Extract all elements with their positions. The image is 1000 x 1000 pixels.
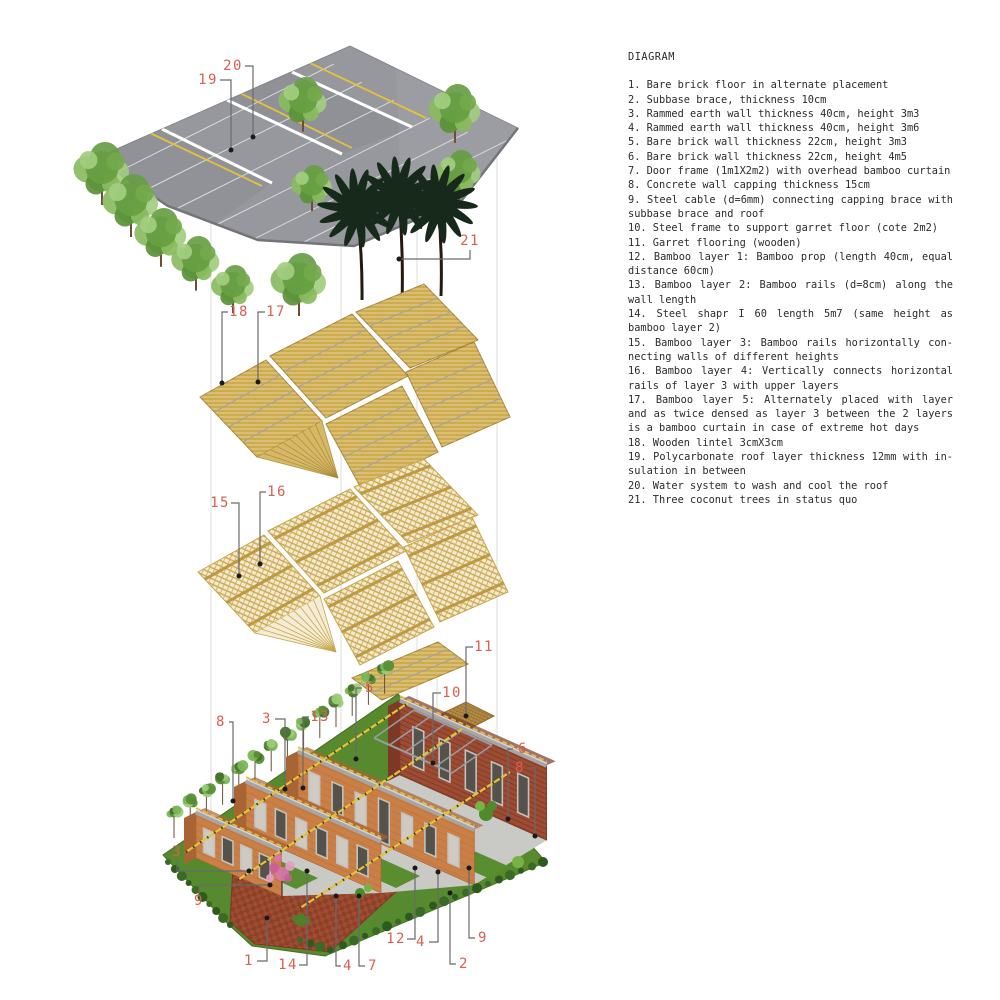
legend-item: 2. Subbase brace, thickness 10cm (628, 93, 953, 107)
callout-dot (533, 834, 538, 839)
callout-number: 17 (266, 304, 286, 320)
callout-number: 16 (267, 484, 287, 500)
legend-item: 21. Three coconut trees in status quo (628, 493, 953, 507)
callout-number: 18 (229, 304, 249, 320)
shrub-icon (512, 856, 524, 868)
callout-number: 11 (474, 639, 494, 655)
legend-item: 11. Garret flooring (wooden) (628, 236, 953, 250)
callout-dot (448, 891, 453, 896)
legend-list: 1. Bare brick floor in alternate placeme… (628, 78, 953, 507)
callout-number: 4 (416, 934, 426, 950)
legend-item: 8. Concrete wall capping thickness 15cm (628, 178, 953, 192)
callout-dot (258, 562, 263, 567)
legend-item: 17. Bamboo layer 5: Alternately placed w… (628, 393, 953, 436)
callout-dot (247, 869, 252, 874)
legend-item: 12. Bamboo layer 1: Bamboo prop (length … (628, 250, 953, 279)
legend-item: 19. Polycarbonate roof layer thickness 1… (628, 450, 953, 479)
callout-dot (283, 787, 288, 792)
callout-number: 8 (216, 714, 226, 730)
callout-number: 9 (194, 893, 204, 909)
callout-21: 21 (397, 233, 480, 262)
legend-item: 16. Bamboo layer 4: Vertically connects … (628, 364, 953, 393)
callout-number: 3 (262, 711, 272, 727)
bamboo-grove-tree-icon (167, 806, 184, 839)
shrub-icon (475, 801, 485, 811)
callout-dot (354, 757, 359, 762)
callout-dot (256, 380, 261, 385)
callout-number: 6 (518, 741, 528, 757)
callout-number: 8 (515, 760, 525, 776)
callout-dot (464, 714, 469, 719)
callout-dot (265, 916, 270, 921)
legend-item: 9. Steel cable (d=6mm) connecting cappin… (628, 193, 953, 222)
callout-dot (467, 866, 472, 871)
legend-item: 15. Bamboo layer 3: Bamboo rails horizon… (628, 336, 953, 365)
callout-number: 1 (244, 953, 254, 969)
callout-dot (268, 883, 273, 888)
callout-number: 10 (442, 685, 462, 701)
legend-item: 3. Rammed earth wall thickness 40cm, hei… (628, 107, 953, 121)
legend-item: 14. Steel shapr I 60 length 5m7 (same he… (628, 307, 953, 336)
callout-dot (231, 799, 236, 804)
bamboo-grove-tree-icon (264, 739, 278, 772)
callout-dot (357, 894, 362, 899)
legend-item: 1. Bare brick floor in alternate placeme… (628, 78, 953, 92)
shrub-icon (364, 884, 372, 892)
legend-item: 13. Bamboo layer 2: Bamboo rails (d=8cm)… (628, 278, 953, 307)
legend-item: 5. Bare brick wall thickness 22cm, heigh… (628, 135, 953, 149)
callout-dot (436, 870, 441, 875)
callout-dot (334, 894, 339, 899)
callout-8-left: 8 (216, 714, 235, 804)
callout-number: 15 (210, 495, 230, 511)
callout-dot (237, 574, 242, 579)
callout-number: 3 (172, 844, 182, 860)
callout-number: 20 (223, 58, 243, 74)
legend: DIAGRAM 1. Bare brick floor in alternate… (628, 50, 953, 507)
legend-title: DIAGRAM (628, 50, 953, 64)
legend-item: 20. Water system to wash and cool the ro… (628, 479, 953, 493)
bamboo-layer-3-lattice-panels (198, 459, 508, 665)
callout-dot (431, 761, 436, 766)
shrub-icon (487, 801, 497, 811)
callout-dot (305, 869, 310, 874)
callout-number: 14 (278, 957, 298, 973)
callout-number: 19 (198, 72, 218, 88)
callout-number: 7 (368, 958, 378, 974)
legend-item: 4. Rammed earth wall thickness 40cm, hei… (628, 121, 953, 135)
legend-item: 18. Wooden lintel 3cmX3cm (628, 436, 953, 450)
diagram-page: 1920211817151611510688313391144712429 DI… (0, 0, 1000, 1000)
legend-item: 6. Bare brick wall thickness 22cm, heigh… (628, 150, 953, 164)
legend-item: 7. Door frame (1m1X2m2) with overhead ba… (628, 164, 953, 178)
bamboo-grove-tree-icon (215, 772, 230, 805)
callout-dot (220, 381, 225, 386)
callout-number: 5 (365, 680, 375, 696)
callout-number: 12 (386, 931, 406, 947)
callout-number: 2 (459, 956, 469, 972)
legend-item: 10. Steel frame to support garret floor … (628, 221, 953, 235)
callout-dot (301, 786, 306, 791)
callout-number: 9 (478, 930, 488, 946)
callout-number: 13 (310, 709, 330, 725)
callout-dot (397, 257, 402, 262)
callout-dot (506, 817, 511, 822)
callout-dot (229, 148, 234, 153)
callout-number: 4 (343, 958, 353, 974)
callout-dot (413, 866, 418, 871)
callout-dot (251, 135, 256, 140)
callout-number: 21 (460, 233, 480, 249)
